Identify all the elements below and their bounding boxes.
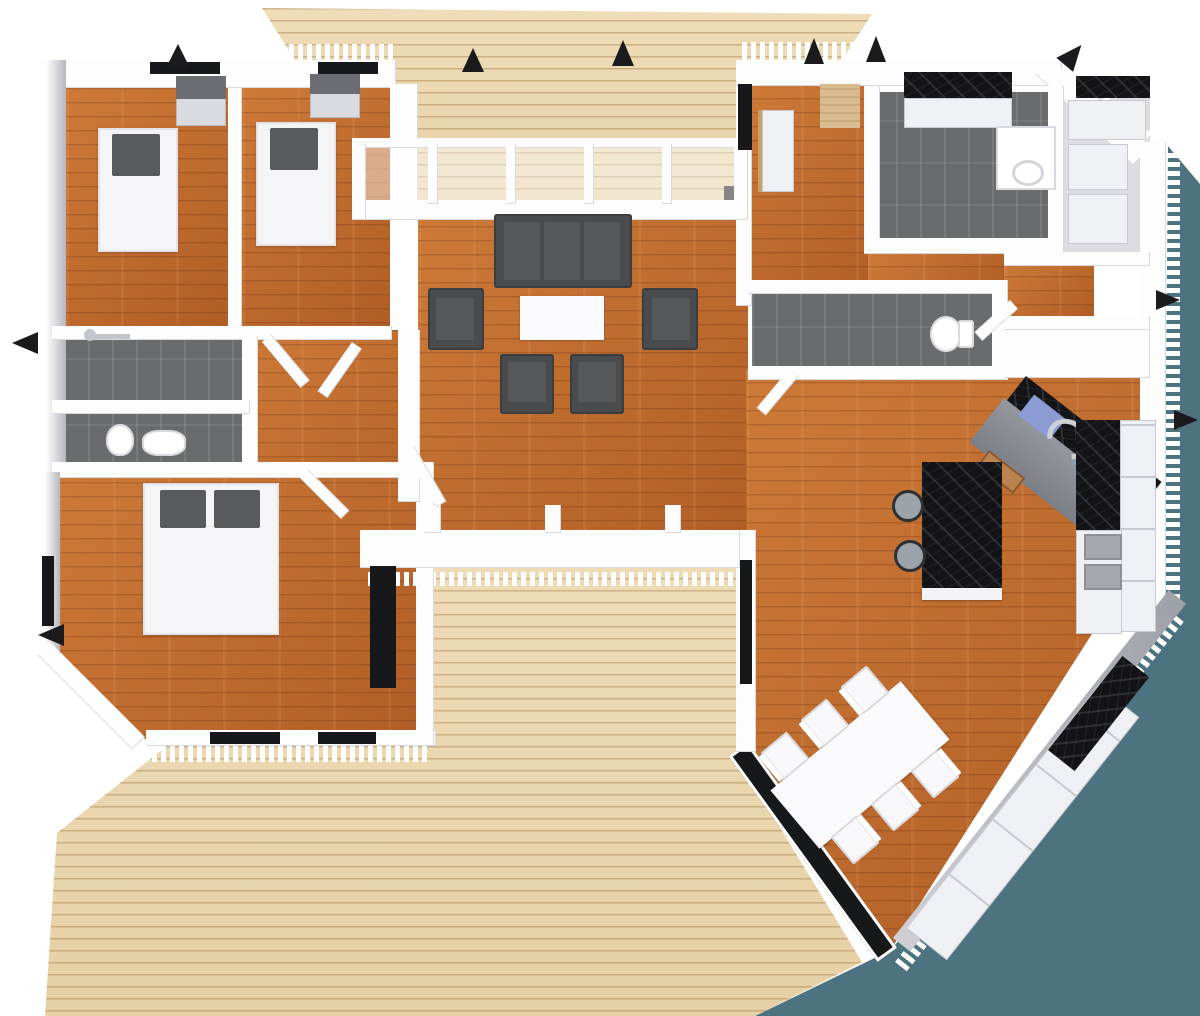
living-north-glass bbox=[352, 146, 748, 204]
storage-shelf-1 bbox=[1068, 100, 1146, 140]
kitchen-island bbox=[922, 462, 1002, 588]
living-north-mullion-1 bbox=[428, 144, 438, 204]
wall-master-north bbox=[52, 462, 434, 478]
master-west-window bbox=[42, 556, 54, 626]
armchair-bottom-1-seat bbox=[508, 362, 546, 402]
master-pillow-left bbox=[160, 490, 206, 528]
storage-shelf-2 bbox=[1068, 144, 1128, 190]
wall-kitchen-north-block bbox=[1004, 330, 1150, 378]
shower-room-floor bbox=[64, 336, 244, 402]
storage-shelf-3 bbox=[1068, 194, 1128, 244]
kitchen-worktop-east bbox=[1076, 420, 1122, 532]
wall-master-south bbox=[146, 730, 436, 746]
utility-counter-front bbox=[904, 98, 1012, 128]
dining-west-window bbox=[740, 560, 752, 684]
sofa bbox=[494, 214, 632, 288]
living-north-mullion-4 bbox=[662, 144, 672, 204]
sink-wc bbox=[142, 430, 186, 456]
sofa-cushion-2 bbox=[544, 222, 580, 280]
bar-stool-1 bbox=[892, 490, 924, 522]
shower-head bbox=[84, 329, 96, 341]
entry-door-mat bbox=[820, 84, 860, 128]
storage-counter-top bbox=[1076, 76, 1150, 98]
wall-teeth-top-right bbox=[742, 42, 1060, 60]
wall-hall-living-divider bbox=[398, 330, 420, 502]
master-south-window-2 bbox=[318, 732, 376, 744]
armchair-right bbox=[642, 288, 698, 350]
armchair-bottom-2 bbox=[570, 354, 624, 414]
armchair-bottom-1 bbox=[500, 354, 554, 414]
armchair-left bbox=[428, 288, 484, 350]
living-south-sill bbox=[360, 530, 740, 568]
bedroom2-window bbox=[318, 62, 378, 74]
floor-plan-scene bbox=[0, 0, 1200, 1016]
wall-teeth-right bbox=[1166, 150, 1180, 608]
kitchen-tall-cabinets-east bbox=[1120, 420, 1156, 632]
deck-sliding-door bbox=[370, 566, 396, 688]
living-north-mullion-2 bbox=[506, 144, 516, 204]
living-south-post-2 bbox=[545, 505, 561, 533]
armchair-left-seat bbox=[436, 298, 474, 340]
wall-bedroom-divider bbox=[228, 88, 242, 332]
wall-teeth-master-south bbox=[62, 746, 430, 762]
wall-ne-room-north bbox=[1004, 252, 1150, 266]
master-pillow-right bbox=[214, 490, 260, 528]
living-south-post-1 bbox=[425, 505, 441, 533]
entry-door-panel bbox=[738, 84, 752, 150]
kitchen-island-base bbox=[922, 588, 1002, 600]
living-north-post-right bbox=[734, 144, 748, 220]
master-south-window-1 bbox=[210, 732, 280, 744]
living-north-post-left bbox=[352, 144, 366, 220]
shower-arm bbox=[92, 334, 130, 339]
bar-stool-2 bbox=[894, 540, 926, 572]
toilet-bathroom2-tank bbox=[958, 320, 974, 348]
wall-entry-north bbox=[736, 60, 1062, 86]
sofa-cushion-3 bbox=[584, 222, 620, 280]
wall-ne-room-south bbox=[1004, 316, 1150, 330]
bed2-pillow bbox=[270, 128, 318, 170]
living-north-toprail bbox=[352, 138, 748, 148]
armchair-right-seat bbox=[652, 298, 690, 340]
wall-shower-wc-divider bbox=[52, 400, 250, 414]
water-heater-lid bbox=[1012, 160, 1044, 186]
bedroom1-wardrobe bbox=[176, 76, 226, 126]
toilet-wc bbox=[106, 424, 134, 456]
armchair-bottom-2-seat bbox=[578, 362, 616, 402]
sofa-cushion-1 bbox=[504, 222, 540, 280]
coffee-table bbox=[520, 296, 604, 340]
utility-counter-top bbox=[904, 72, 1012, 98]
bedroom2-wardrobe bbox=[310, 74, 360, 118]
entry-shelf bbox=[758, 110, 794, 192]
living-north-mullion-3 bbox=[584, 144, 594, 204]
kitchen-appliance-2 bbox=[1084, 564, 1122, 590]
living-south-post-3 bbox=[665, 505, 681, 533]
water-heater bbox=[996, 126, 1056, 190]
bed1-pillow bbox=[112, 134, 160, 176]
wall-bathroom2-north bbox=[748, 280, 1006, 294]
wall-utility-west bbox=[864, 86, 880, 252]
kitchen-appliance-1 bbox=[1084, 534, 1122, 560]
